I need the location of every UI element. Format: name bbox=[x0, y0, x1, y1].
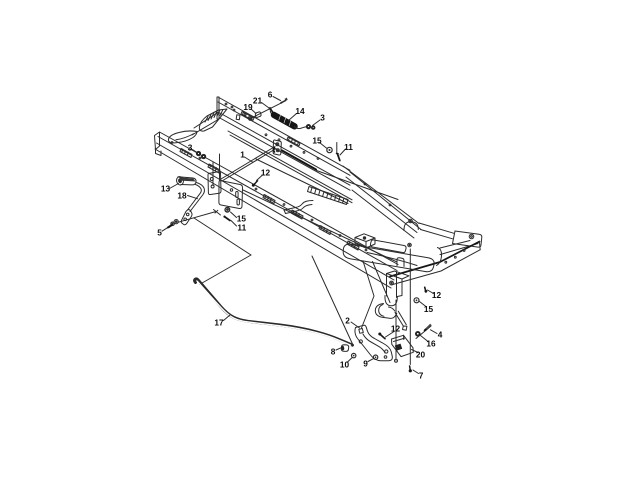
svg-text:3: 3 bbox=[320, 113, 325, 123]
svg-text:8: 8 bbox=[331, 347, 336, 357]
svg-text:14: 14 bbox=[295, 106, 305, 116]
svg-text:12: 12 bbox=[432, 290, 442, 300]
svg-text:7: 7 bbox=[419, 371, 424, 381]
svg-text:6: 6 bbox=[268, 90, 273, 100]
svg-text:12: 12 bbox=[391, 323, 401, 333]
svg-text:3: 3 bbox=[188, 143, 193, 153]
svg-text:15: 15 bbox=[424, 304, 434, 314]
svg-text:17: 17 bbox=[214, 318, 224, 328]
svg-text:18: 18 bbox=[177, 191, 187, 201]
svg-text:10: 10 bbox=[340, 360, 350, 370]
svg-text:13: 13 bbox=[161, 184, 171, 194]
svg-text:9: 9 bbox=[363, 359, 368, 369]
svg-text:19: 19 bbox=[243, 102, 253, 112]
svg-text:4: 4 bbox=[438, 330, 443, 340]
svg-text:11: 11 bbox=[237, 222, 246, 232]
svg-text:1: 1 bbox=[240, 150, 245, 160]
svg-text:11: 11 bbox=[344, 142, 353, 152]
svg-text:16: 16 bbox=[426, 339, 436, 349]
svg-text:5: 5 bbox=[157, 228, 162, 238]
svg-text:2: 2 bbox=[345, 316, 350, 326]
svg-text:12: 12 bbox=[261, 168, 271, 178]
svg-text:15: 15 bbox=[312, 136, 322, 146]
svg-text:21: 21 bbox=[253, 96, 263, 106]
svg-text:20: 20 bbox=[416, 350, 426, 360]
